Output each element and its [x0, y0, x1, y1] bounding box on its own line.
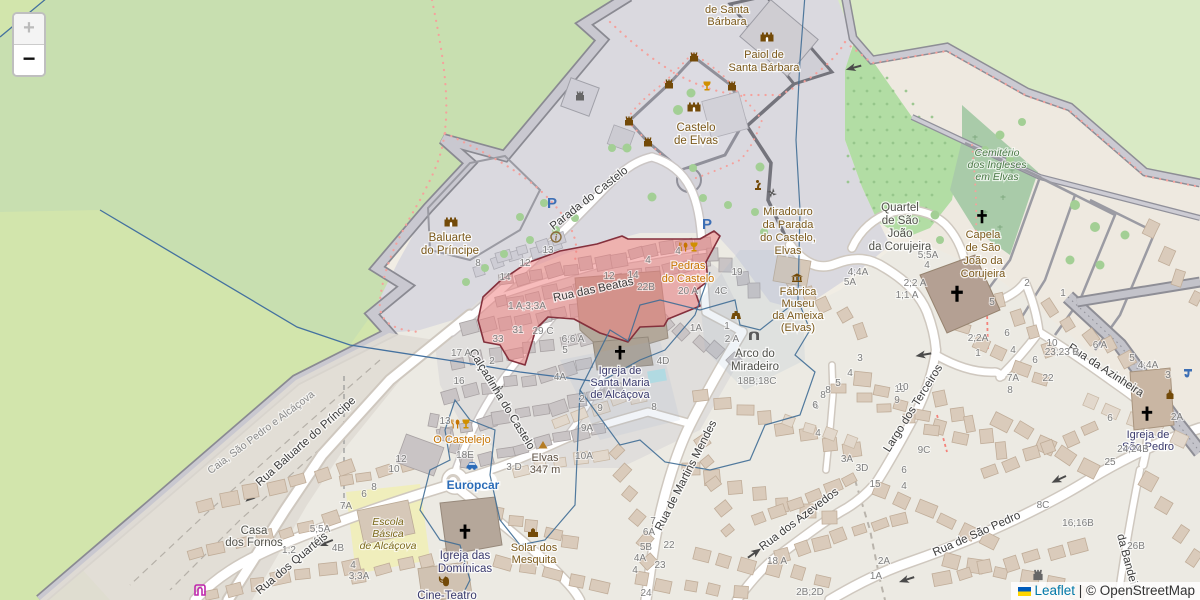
svg-text:24: 24	[640, 588, 652, 599]
svg-text:João da: João da	[963, 255, 1003, 267]
svg-text:13: 13	[439, 416, 451, 427]
svg-text:Capela: Capela	[966, 229, 1002, 241]
svg-text:10: 10	[388, 464, 400, 475]
svg-text:29 C: 29 C	[532, 326, 553, 337]
svg-text:4: 4	[632, 565, 638, 576]
svg-text:18B;18C: 18B;18C	[738, 376, 777, 387]
svg-text:Igreja de: Igreja de	[1127, 429, 1170, 441]
svg-text:24;24B: 24;24B	[1117, 444, 1149, 455]
svg-text:Paiol de: Paiol de	[744, 49, 784, 61]
svg-text:1: 1	[975, 348, 981, 359]
svg-text:João: João	[888, 228, 913, 240]
svg-text:1: 1	[1060, 288, 1066, 299]
svg-text:Elvas: Elvas	[532, 452, 559, 464]
svg-text:20 A: 20 A	[678, 286, 698, 297]
svg-text:do Príncipe: do Príncipe	[421, 245, 479, 257]
svg-text:9C: 9C	[918, 445, 931, 456]
svg-text:Baluarte: Baluarte	[429, 232, 472, 244]
svg-text:Domínicas: Domínicas	[438, 563, 493, 575]
svg-text:Fábrica: Fábrica	[780, 286, 818, 298]
svg-text:Santa Maria: Santa Maria	[590, 377, 650, 389]
svg-text:7A: 7A	[340, 501, 353, 512]
svg-text:Santa Bárbara: Santa Bárbara	[729, 62, 801, 74]
svg-text:3D: 3D	[856, 463, 869, 474]
svg-text:8C: 8C	[1037, 500, 1050, 511]
svg-text:4: 4	[350, 560, 356, 571]
svg-text:do Castelo: do Castelo	[662, 273, 715, 285]
svg-text:5B: 5B	[640, 542, 653, 553]
svg-text:Solar dos: Solar dos	[511, 542, 558, 554]
svg-text:6: 6	[812, 400, 818, 411]
svg-text:4: 4	[1010, 345, 1016, 356]
svg-text:6: 6	[361, 489, 367, 500]
svg-text:8: 8	[475, 258, 481, 269]
svg-text:Miradeiro: Miradeiro	[731, 361, 779, 373]
svg-text:1: 1	[724, 321, 730, 332]
svg-text:Museu: Museu	[781, 298, 814, 310]
svg-text:9: 9	[894, 395, 900, 406]
svg-text:6: 6	[1107, 413, 1113, 424]
svg-text:Cine-Teatro: Cine-Teatro	[417, 590, 476, 600]
svg-text:25: 25	[1104, 457, 1116, 468]
svg-text:4: 4	[645, 255, 651, 266]
svg-text:3;3A: 3;3A	[349, 571, 370, 582]
svg-text:Mesquita: Mesquita	[512, 554, 558, 566]
svg-text:8: 8	[1007, 385, 1013, 396]
svg-text:33: 33	[492, 334, 504, 345]
svg-text:4D: 4D	[657, 356, 670, 367]
svg-text:10A: 10A	[575, 451, 593, 462]
svg-text:dos Fornos: dos Fornos	[225, 537, 283, 549]
svg-text:Pedras: Pedras	[671, 260, 706, 272]
svg-text:6;6 A: 6;6 A	[562, 334, 585, 345]
svg-text:4C: 4C	[715, 286, 728, 297]
svg-text:3: 3	[1165, 370, 1171, 381]
svg-text:1;1 A: 1;1 A	[896, 290, 919, 301]
svg-text:26B: 26B	[1127, 541, 1145, 552]
svg-text:18E: 18E	[456, 450, 474, 461]
svg-text:4: 4	[815, 428, 821, 439]
svg-text:de São: de São	[882, 215, 918, 227]
svg-text:10: 10	[897, 382, 909, 393]
svg-text:Bárbara: Bárbara	[707, 16, 747, 28]
svg-text:8: 8	[651, 402, 657, 413]
svg-text:Quartel: Quartel	[881, 202, 919, 214]
svg-text:4: 4	[847, 368, 853, 379]
svg-text:2;2A: 2;2A	[968, 333, 989, 344]
svg-text:5: 5	[562, 345, 568, 356]
svg-text:4: 4	[901, 481, 907, 492]
svg-text:dos Ingleses: dos Ingleses	[968, 159, 1028, 171]
svg-text:2A: 2A	[878, 556, 891, 567]
svg-text:31: 31	[512, 325, 524, 336]
svg-text:15: 15	[869, 479, 881, 490]
svg-text:1 A;3;3A: 1 A;3;3A	[508, 301, 546, 312]
svg-text:Básica: Básica	[372, 528, 404, 540]
svg-text:3: 3	[857, 353, 863, 364]
svg-text:6: 6	[901, 465, 907, 476]
svg-text:Igreja das: Igreja das	[440, 550, 491, 562]
svg-text:4;4A: 4;4A	[1138, 360, 1159, 371]
svg-text:de Alcáçova: de Alcáçova	[360, 540, 417, 552]
svg-text:4A: 4A	[554, 372, 567, 383]
svg-text:1A: 1A	[870, 571, 883, 582]
svg-text:12: 12	[519, 258, 531, 269]
svg-text:22B: 22B	[637, 282, 655, 293]
svg-text:5: 5	[1129, 353, 1135, 364]
svg-text:16;16B: 16;16B	[1062, 518, 1094, 529]
svg-text:16: 16	[453, 376, 465, 387]
svg-text:2;2 A: 2;2 A	[904, 278, 927, 289]
svg-text:Cemitério: Cemitério	[975, 147, 1020, 159]
svg-text:9: 9	[597, 403, 603, 414]
svg-text:5: 5	[989, 297, 995, 308]
svg-text:22: 22	[1042, 373, 1054, 384]
svg-text:5: 5	[835, 378, 841, 389]
svg-text:Casa: Casa	[241, 525, 268, 537]
svg-text:22: 22	[663, 540, 675, 551]
svg-text:1;2: 1;2	[282, 545, 296, 556]
svg-text:8: 8	[825, 385, 831, 396]
svg-text:2B;2D: 2B;2D	[796, 587, 824, 598]
svg-text:4: 4	[675, 246, 681, 257]
svg-text:7: 7	[650, 516, 656, 527]
svg-text:Elvas: Elvas	[775, 245, 802, 257]
svg-text:4: 4	[924, 260, 930, 271]
svg-text:2 A: 2 A	[725, 334, 740, 345]
svg-text:5A: 5A	[844, 277, 857, 288]
svg-text:Escola: Escola	[372, 516, 404, 528]
svg-text:Europcar: Europcar	[447, 478, 500, 492]
svg-text:13: 13	[542, 245, 554, 256]
svg-text:de Elvas: de Elvas	[674, 135, 718, 147]
svg-text:(Elvas): (Elvas)	[781, 322, 815, 334]
svg-text:10: 10	[1046, 338, 1058, 349]
svg-text:Miradouro: Miradouro	[763, 206, 813, 218]
svg-text:18 A: 18 A	[767, 556, 787, 567]
svg-text:4A: 4A	[634, 553, 647, 564]
svg-text:2: 2	[489, 356, 495, 367]
svg-text:7A: 7A	[1007, 373, 1020, 384]
svg-text:2: 2	[579, 394, 585, 405]
svg-text:3 D: 3 D	[506, 462, 522, 473]
svg-text:17 A: 17 A	[451, 348, 471, 359]
svg-text:de São: de São	[966, 242, 1001, 254]
svg-text:da Parada: da Parada	[763, 219, 815, 231]
svg-text:6: 6	[1032, 355, 1038, 366]
svg-text:23: 23	[654, 560, 666, 571]
svg-text:1A: 1A	[690, 323, 703, 334]
svg-text:8: 8	[371, 482, 377, 493]
svg-text:9A: 9A	[581, 423, 594, 434]
svg-text:2: 2	[1024, 278, 1030, 289]
svg-text:2A: 2A	[1171, 412, 1184, 423]
svg-text:6 A: 6 A	[1093, 340, 1108, 351]
svg-text:14: 14	[499, 272, 511, 283]
svg-text:da Ameixa: da Ameixa	[772, 310, 824, 322]
svg-text:6: 6	[1004, 328, 1010, 339]
svg-text:5;5A: 5;5A	[310, 524, 331, 535]
svg-text:de Santa: de Santa	[705, 4, 750, 16]
svg-text:do Castelo,: do Castelo,	[760, 232, 816, 244]
svg-text:6A: 6A	[643, 527, 656, 538]
svg-text:3A: 3A	[841, 454, 854, 465]
svg-text:4B: 4B	[332, 543, 345, 554]
svg-text:347 m: 347 m	[530, 464, 561, 476]
svg-text:Corujeira: Corujeira	[961, 268, 1007, 280]
svg-text:de Alcáçova: de Alcáçova	[590, 389, 650, 401]
svg-text:Igreja de: Igreja de	[599, 365, 642, 377]
svg-text:em Elvas: em Elvas	[975, 171, 1019, 183]
svg-text:14: 14	[627, 270, 639, 281]
svg-text:Castelo: Castelo	[677, 122, 716, 134]
svg-text:Arco do: Arco do	[735, 348, 775, 360]
svg-text:12: 12	[603, 271, 615, 282]
svg-text:19: 19	[731, 267, 743, 278]
svg-text:O Castelejo: O Castelejo	[433, 434, 490, 446]
